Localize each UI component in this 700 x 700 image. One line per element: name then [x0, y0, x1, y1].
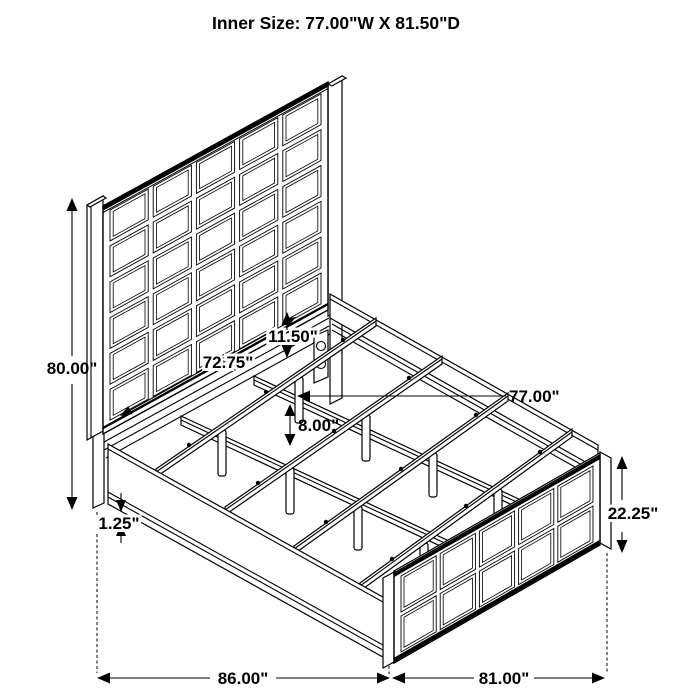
slat-leg: [354, 506, 362, 550]
rail-lip-label: 1.25": [98, 514, 139, 533]
headboard-left-post: [87, 196, 103, 440]
slat-leg: [429, 453, 437, 497]
overall-height-label: 80.00": [47, 359, 98, 378]
footboard-right-post: [600, 452, 611, 549]
footboard-left-post: [383, 572, 394, 668]
overall-length-label: 86.00": [218, 669, 269, 688]
headboard: [87, 76, 346, 508]
diagram-title: Inner Size: 77.00"W X 81.50"D: [212, 13, 460, 33]
side-rail-front: [108, 444, 390, 661]
headboard-rail-gap-label: 11.50": [268, 327, 318, 346]
under-bed-clearance-label: 8.00": [298, 416, 339, 435]
footboard-length-label: 81.00": [479, 669, 530, 688]
slat-leg: [362, 415, 370, 461]
headboard-width-label: 72.75": [203, 353, 254, 372]
headboard-left-leg: [93, 430, 104, 508]
diagram-page: 80.00" 72.75" 11.50" 77.00" 8.00" 1.25": [0, 0, 700, 700]
bed-dimension-diagram: 80.00" 72.75" 11.50" 77.00" 8.00" 1.25": [0, 0, 700, 700]
slat-leg: [286, 468, 294, 514]
footboard-height-label: 22.25": [608, 504, 659, 523]
headboard-right-post: [328, 76, 342, 316]
dimension-footboard-height: 22.25": [608, 456, 659, 553]
dimension-footboard-length: 81.00": [392, 669, 605, 688]
dimension-overall-length: 86.00": [97, 669, 390, 688]
inner-width-label: 77.00": [509, 387, 560, 406]
slat-leg: [218, 430, 226, 476]
